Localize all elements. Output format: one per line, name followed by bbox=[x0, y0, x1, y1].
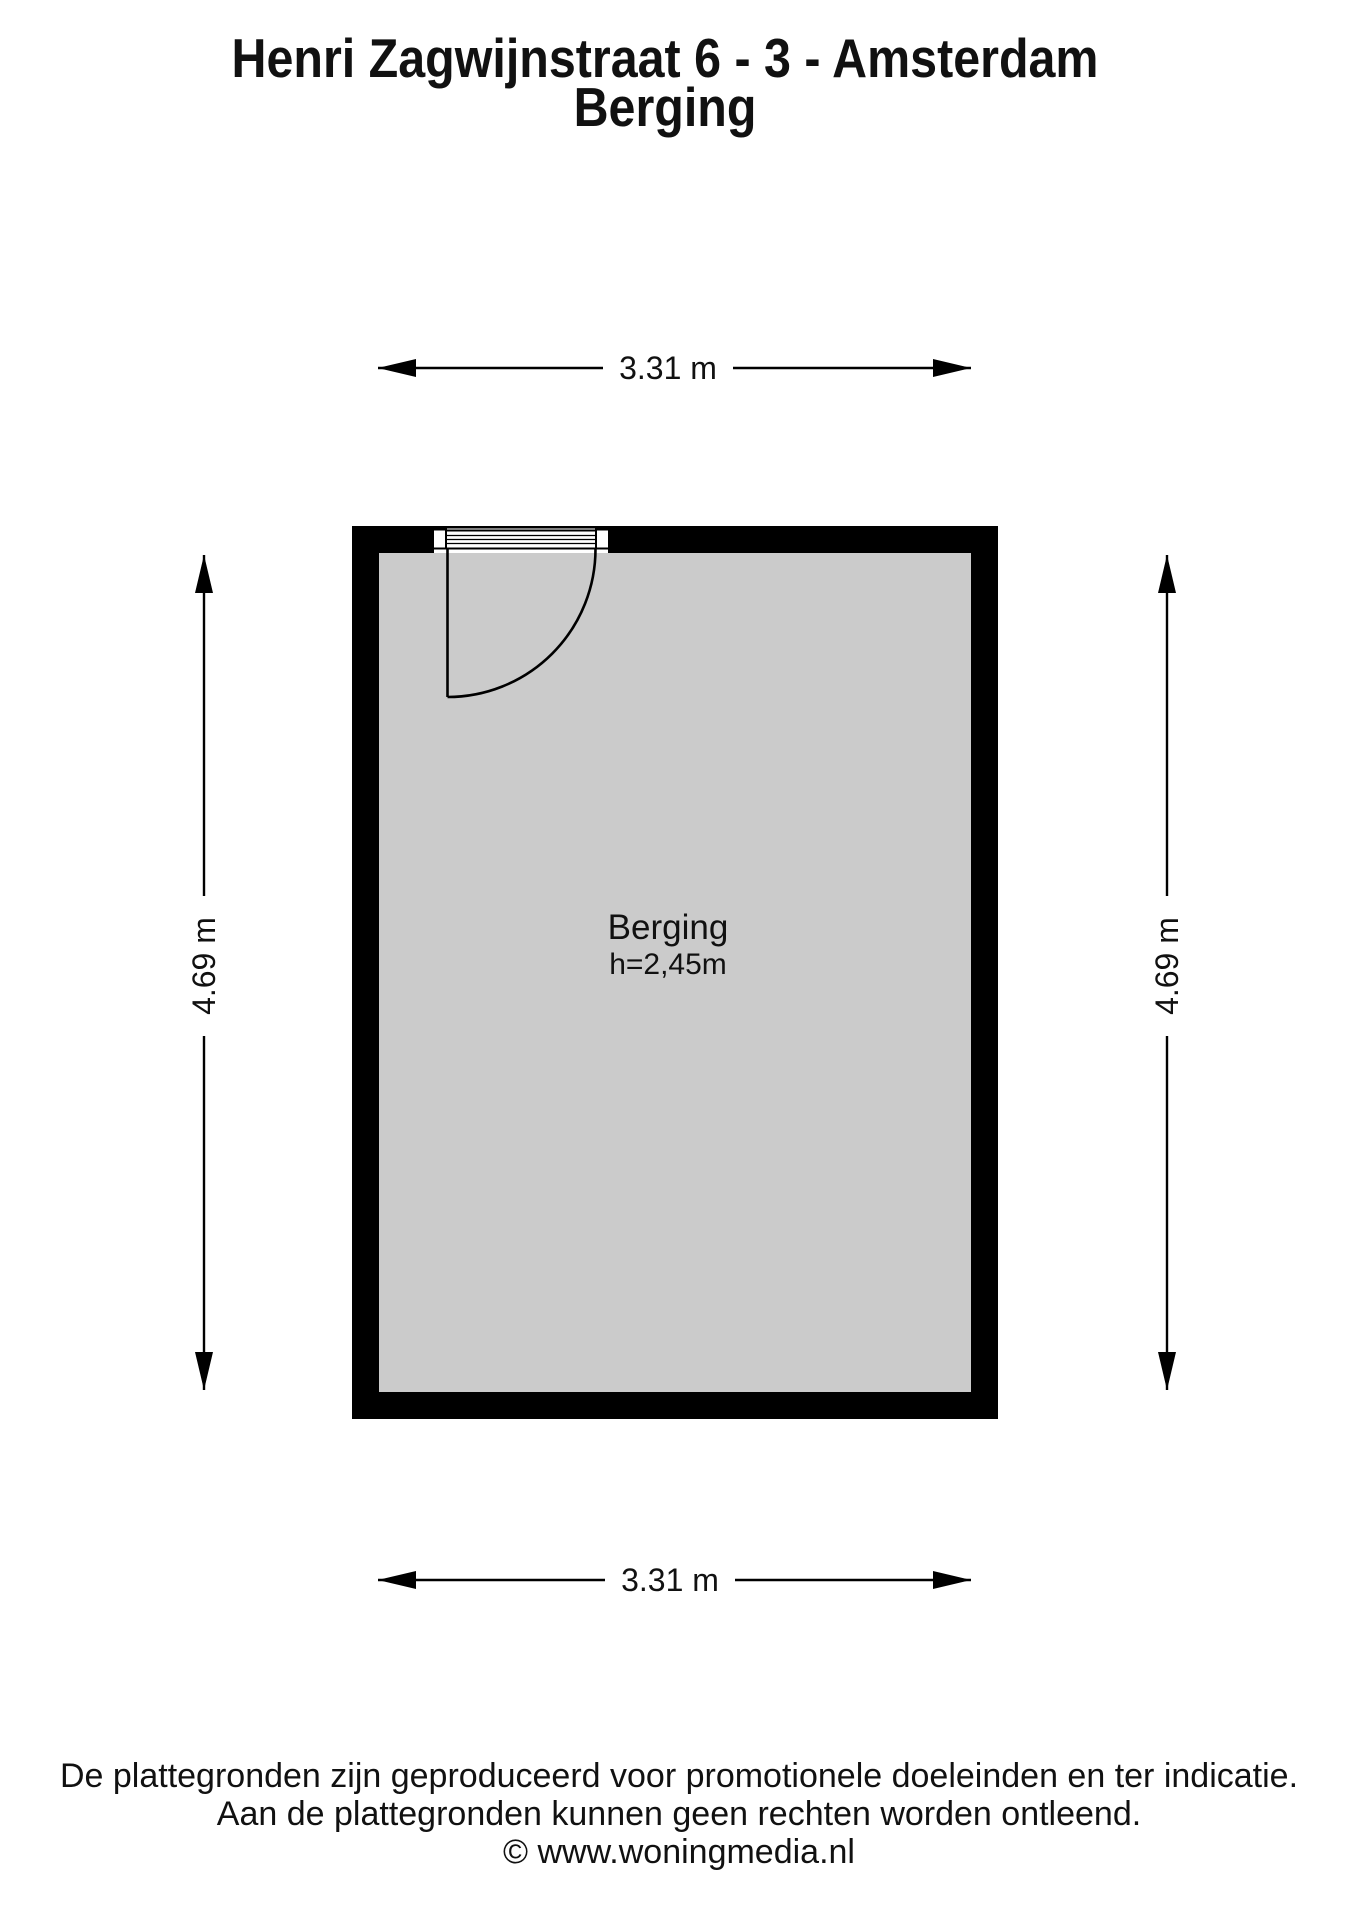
arrowhead-left-icon bbox=[378, 359, 416, 377]
dim-label-top: 3.31 m bbox=[603, 349, 733, 387]
floorplan-page: Henri Zagwijnstraat 6 - 3 - Amsterdam Be… bbox=[0, 0, 1358, 1920]
arrowhead-up-icon bbox=[1158, 555, 1176, 593]
arrowhead-down-icon bbox=[195, 1352, 213, 1390]
copyright-credit: © www.woningmedia.nl bbox=[0, 1833, 1358, 1871]
room-ceiling-height: h=2,45m bbox=[518, 948, 818, 981]
room-label: Berging h=2,45m bbox=[518, 908, 818, 981]
arrowhead-left-icon bbox=[378, 1571, 416, 1589]
arrowhead-right-icon bbox=[933, 1571, 971, 1589]
room-name: Berging bbox=[518, 908, 818, 948]
arrowhead-down-icon bbox=[1158, 1352, 1176, 1390]
door-frame-left bbox=[433, 530, 446, 549]
disclaimer-line-1: De plattegronden zijn geproduceerd voor … bbox=[0, 1757, 1358, 1795]
disclaimer-line-2: Aan de plattegronden kunnen geen rechten… bbox=[0, 1795, 1358, 1833]
arrowhead-up-icon bbox=[195, 555, 213, 593]
dim-label-right: 4.69 m bbox=[1148, 896, 1186, 1036]
dim-label-left: 4.69 m bbox=[185, 896, 223, 1036]
door-frame-right bbox=[596, 530, 609, 549]
arrowhead-right-icon bbox=[933, 359, 971, 377]
dim-label-bottom: 3.31 m bbox=[605, 1561, 735, 1599]
footer: De plattegronden zijn geproduceerd voor … bbox=[0, 1757, 1358, 1871]
